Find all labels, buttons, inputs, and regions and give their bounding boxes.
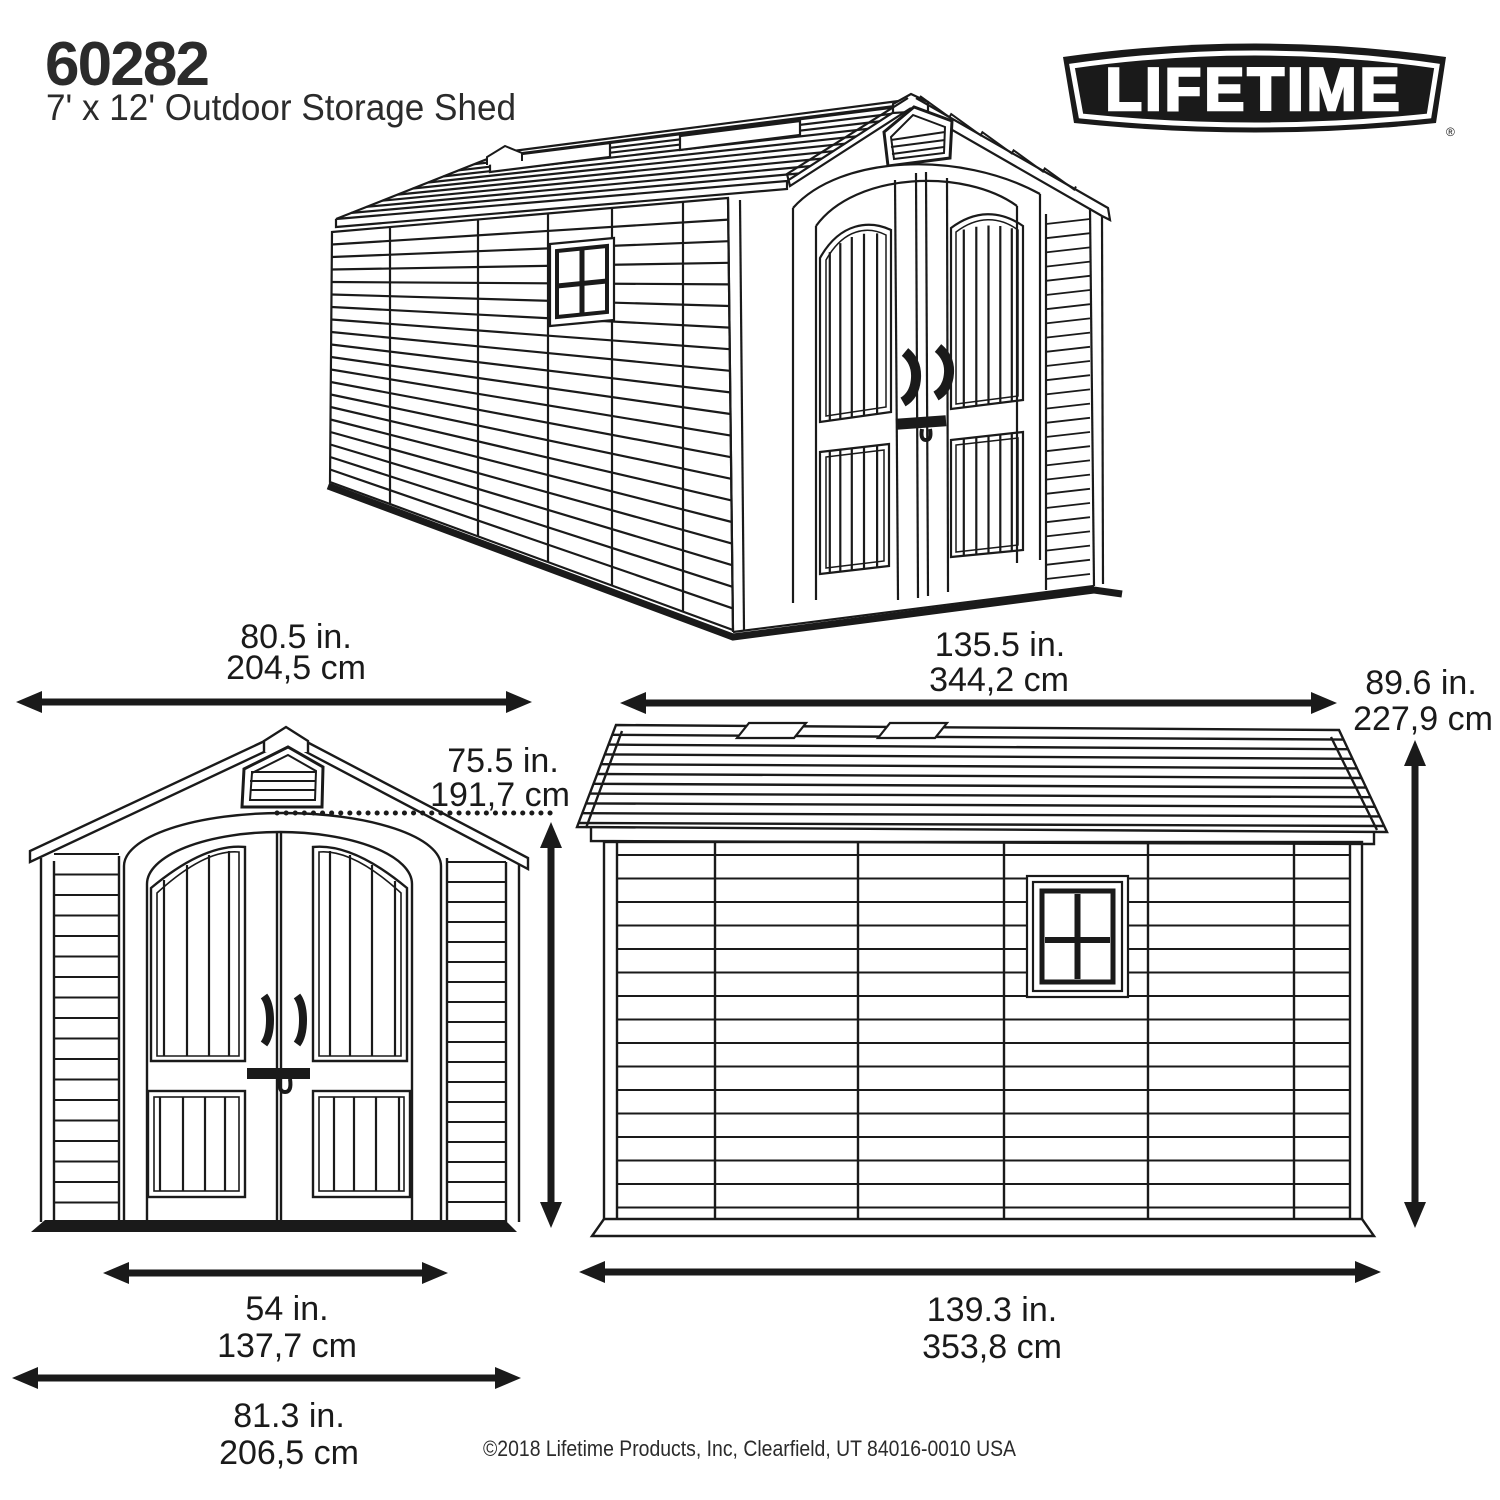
svg-text:©2018 Lifetime Products, Inc,: ©2018 Lifetime Products, Inc, Clearfield… [483,1436,1016,1461]
svg-text:353,8 cm: 353,8 cm [922,1328,1062,1366]
svg-text:81.3 in.: 81.3 in. [233,1397,345,1435]
svg-text:344,2 cm: 344,2 cm [929,661,1069,699]
svg-text:54 in.: 54 in. [245,1290,328,1328]
svg-text:89.6 in.: 89.6 in. [1365,664,1477,702]
svg-text:204,5 cm: 204,5 cm [226,649,366,687]
svg-text:191,7 cm: 191,7 cm [430,776,570,814]
svg-text:75.5 in.: 75.5 in. [447,742,559,780]
svg-text:LIFETIME: LIFETIME [1105,56,1402,123]
svg-text:206,5 cm: 206,5 cm [219,1434,359,1472]
svg-text:135.5 in.: 135.5 in. [935,626,1065,664]
svg-text:®: ® [1446,125,1455,139]
svg-text:7' x 12' Outdoor Storage Shed: 7' x 12' Outdoor Storage Shed [46,87,516,128]
svg-text:227,9 cm: 227,9 cm [1353,700,1493,738]
svg-text:137,7 cm: 137,7 cm [217,1327,357,1365]
svg-text:139.3 in.: 139.3 in. [927,1291,1057,1329]
